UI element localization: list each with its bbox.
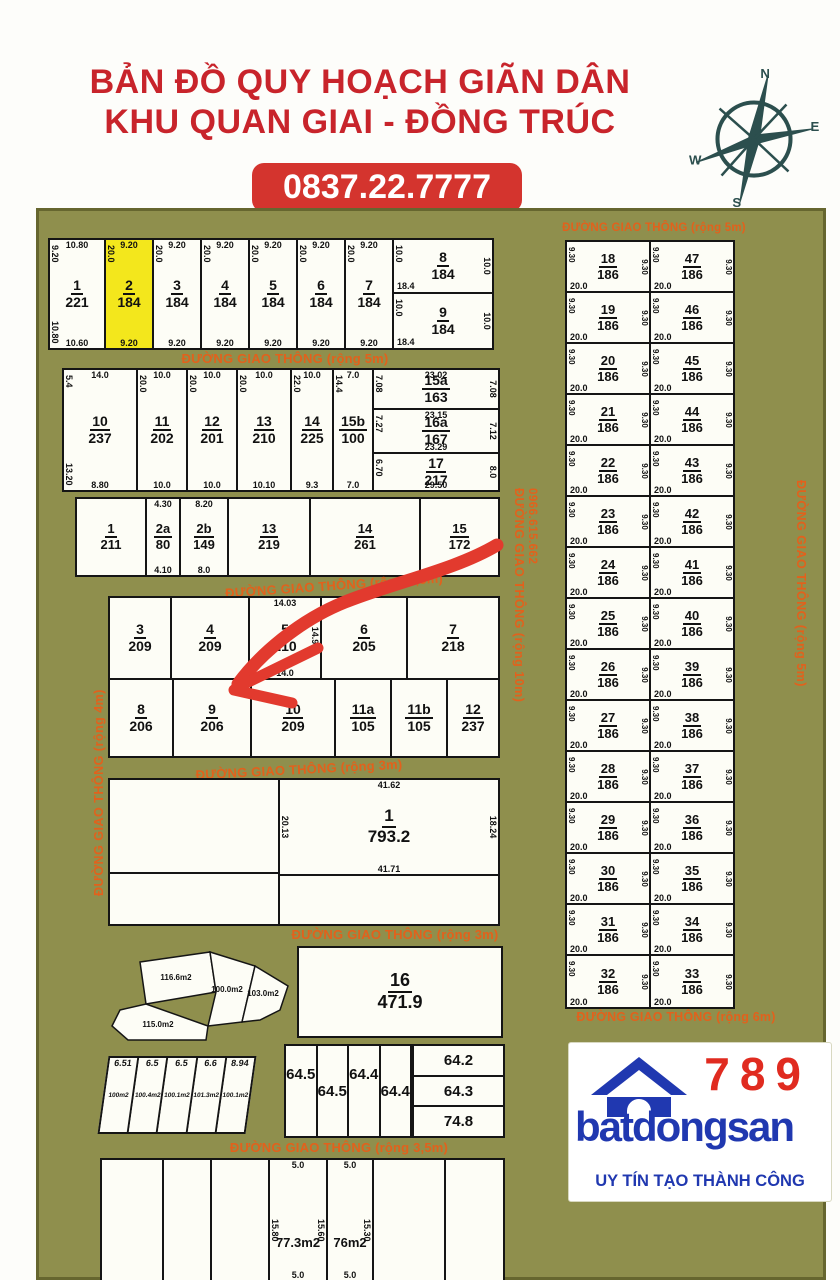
plot-label: 28186 — [597, 762, 619, 791]
dim-top: 5.0 — [328, 1160, 372, 1170]
plot: 64.3 — [414, 1077, 503, 1108]
plot-area: 64.4 — [381, 1083, 410, 1100]
planning-map-page: BẢN ĐỒ QUY HOẠCH GIÃN DÂN KHU QUAN GIAI … — [0, 0, 840, 1280]
dim-left: 9.30 — [651, 655, 660, 671]
plot: 8206 — [110, 680, 174, 756]
dim-left: 9.30 — [651, 808, 660, 824]
dim-bottom: 4.10 — [147, 565, 179, 575]
plot: 9.30 32186 9.30 20.0 — [567, 956, 651, 1007]
dim-bottom: 20.0 — [654, 689, 672, 699]
plot: 9.30 24186 9.30 20.0 — [567, 548, 651, 597]
plot-label: 11202 — [150, 414, 173, 447]
plot-area: 100.1m2 — [222, 1092, 249, 1099]
right-column-row: 9.30 24186 9.30 20.0 9.30 41186 9.30 20.… — [567, 548, 733, 599]
plot-area: 100.1m2 — [164, 1092, 191, 1099]
dim-bottom: 20.0 — [654, 842, 672, 852]
dim-bottom: 5.0 — [328, 1270, 372, 1280]
dim-top: 5.0 — [270, 1160, 326, 1170]
dim-bottom: 20.0 — [654, 281, 672, 291]
plot: 13219 — [229, 499, 311, 575]
dim-bottom: 9.20 — [154, 338, 200, 348]
right-column-row: 9.30 22186 9.30 20.0 9.30 43186 9.30 20.… — [567, 446, 733, 497]
dim-left: 9.30 — [567, 808, 576, 824]
dim-right: 9.30 — [724, 259, 733, 275]
right-column-row: 9.30 31186 9.30 20.0 9.30 34186 9.30 20.… — [567, 905, 733, 956]
plot: 41.62 20.13 18.24 1793.2 41.71 — [280, 780, 498, 876]
dim-top: 4.30 — [147, 499, 179, 509]
dim-right: 9.30 — [724, 412, 733, 428]
dim-left: 7.27 — [374, 415, 384, 433]
dim-top: 6.6 — [196, 1058, 225, 1068]
plot: 9.30 43186 9.30 20.0 — [651, 446, 733, 495]
dim-bottom: 20.0 — [570, 383, 588, 393]
dim-right: 9.30 — [724, 361, 733, 377]
plot-label: 36186 — [681, 813, 703, 842]
road-label-vertical: ĐƯỜNG GIAO THÔNG (rộng 10m) — [512, 488, 526, 702]
compass-n: N — [760, 66, 770, 81]
plot — [280, 876, 498, 924]
plot-area: 64.5 — [286, 1066, 315, 1083]
logo-brand: batdongsan — [575, 1103, 793, 1151]
plot: 9.30 27186 9.30 20.0 — [567, 701, 651, 750]
plot: 9.30 33186 9.30 20.0 — [651, 956, 733, 1007]
dim-right: 9.30 — [640, 667, 649, 683]
road-label: ĐƯỜNG GIAO THÔNG (rộng 5m) — [152, 351, 418, 366]
plot-label: 47186 — [681, 252, 703, 281]
block-d: 3209 4209 14.03 14.94 5210 14.0 — [108, 596, 500, 758]
plot-label: 41186 — [681, 558, 703, 587]
dim-left: 9.30 — [651, 859, 660, 875]
plot: 9.30 23186 9.30 20.0 — [567, 497, 651, 546]
dim-right: 9.30 — [640, 616, 649, 632]
plot — [110, 780, 278, 874]
plot: 7.0 14.4 15b100 7.0 — [334, 370, 374, 490]
plot: 10.0 10.0 9184 18.4 — [394, 294, 492, 348]
block-e-left — [110, 780, 280, 924]
plot: 5.0 15.80 15.60 77.3m2 5.0 — [270, 1160, 328, 1280]
plot-label: 20186 — [597, 354, 619, 383]
dim-left: 20.0 — [106, 245, 116, 263]
block-b-strips: 14.0 5.4 13.20 10237 8.80 10.0 20.0 1120… — [64, 370, 374, 490]
dim-bottom: 20.0 — [570, 281, 588, 291]
dim-left: 20.0 — [138, 375, 148, 393]
dim-right: 10.0 — [482, 257, 492, 275]
dim-bottom: 7.0 — [334, 480, 372, 490]
right-column-row: 9.30 21186 9.30 20.0 9.30 44186 9.30 20.… — [567, 395, 733, 446]
dim-right: 9.30 — [640, 514, 649, 530]
plot-label: 4184 — [213, 278, 236, 311]
dim-bottom: 20.0 — [570, 587, 588, 597]
plot-label: 40186 — [681, 609, 703, 638]
logo-number: 789 — [704, 1047, 811, 1101]
plot-label: 3209 — [128, 622, 151, 655]
road-label-vertical: ĐƯỜNG GIAO THÔNG (rộng 4m) — [92, 606, 106, 896]
plot: 64.2 — [414, 1046, 503, 1077]
plot-label: 16a167 — [422, 415, 449, 448]
dim-right: 7.12 — [488, 422, 498, 440]
plot: 9.30 41186 9.30 20.0 — [651, 548, 733, 597]
dim-bottom: 18.4 — [397, 337, 415, 347]
plot: 9.30 42186 9.30 20.0 — [651, 497, 733, 546]
dim-right: 9.30 — [640, 974, 649, 990]
dim-bottom: 10.0 — [138, 480, 186, 490]
plot-label: 33186 — [681, 967, 703, 996]
dim-left: 6.70 — [374, 459, 384, 477]
plot: 9.30 29186 9.30 20.0 — [567, 803, 651, 852]
dim-bottom: 20.0 — [654, 587, 672, 597]
block-b: 14.0 5.4 13.20 10237 8.80 10.0 20.0 1120… — [62, 368, 500, 492]
block-e-right: 41.62 20.13 18.24 1793.2 41.71 — [280, 780, 498, 924]
dim-left: 10.0 — [394, 299, 404, 317]
plot: 14261 — [311, 499, 421, 575]
dim-right: 9.30 — [724, 514, 733, 530]
road-label: ĐƯỜNG GIAO THÔNG (rộng 6m) — [556, 1010, 796, 1024]
dim-left: 9.30 — [567, 553, 576, 569]
plot-label: 1793.2 — [368, 807, 411, 846]
plot: 9.20 20.0 6184 9.20 — [298, 240, 346, 348]
dim-bottom: 9.20 — [346, 338, 392, 348]
plot-label: 25186 — [597, 609, 619, 638]
plot: 9.30 25186 9.30 20.0 — [567, 599, 651, 648]
plot-area: 115.0m2 — [142, 1020, 174, 1029]
title-line-2: KHU QUAN GIAI - ĐỒNG TRÚC — [30, 102, 690, 142]
plot: 9.30 31186 9.30 20.0 — [567, 905, 651, 954]
dim-bottom: 20.0 — [570, 485, 588, 495]
plot: 4.30 2a80 4.10 — [147, 499, 181, 575]
dim-right: 9.30 — [640, 361, 649, 377]
plot: 15172 — [421, 499, 498, 575]
right-column-row: 9.30 20186 9.30 20.0 9.30 45186 9.30 20.… — [567, 344, 733, 395]
plot: 9.30 47186 9.30 20.0 — [651, 242, 733, 291]
plot: 64.4 — [381, 1046, 411, 1136]
dim-top: 8.94 — [226, 1058, 255, 1068]
plot-label: 31186 — [597, 915, 619, 944]
plot: 12237 — [448, 680, 498, 756]
plot-label: 32186 — [597, 967, 619, 996]
plot-label: 43186 — [681, 456, 703, 485]
plot — [446, 1160, 503, 1280]
block-g-strips: 6.51 100m2 6.5 100.4m2 6.5 100.1m2 6.6 1… — [98, 1056, 257, 1134]
plot-label: 7184 — [357, 278, 380, 311]
plot-label: 29186 — [597, 813, 619, 842]
dim-bottom: 20.0 — [570, 332, 588, 342]
plot: 9206 — [174, 680, 252, 756]
plot-label: 35186 — [681, 864, 703, 893]
dim-left: 9.30 — [567, 859, 576, 875]
plot: 9.30 40186 9.30 20.0 — [651, 599, 733, 648]
block-a: 10.80 9.20 10.80 1221 10.60 9.20 20.0 21… — [48, 238, 494, 350]
dim-left: 5.4 — [64, 375, 74, 388]
plot-label: 12237 — [461, 702, 484, 735]
dim-right: 9.30 — [724, 616, 733, 632]
dim-top: 14.03 — [250, 598, 320, 608]
dim-bottom: 20.0 — [570, 842, 588, 852]
compass-w: W — [689, 152, 702, 167]
dim-bottom: 20.0 — [654, 944, 672, 954]
road-label: ĐƯỜNG GIAO THÔNG (rộng 5m) — [556, 222, 752, 234]
dim-top: 6.51 — [109, 1058, 138, 1068]
right-column-row: 9.30 30186 9.30 20.0 9.30 35186 9.30 20.… — [567, 854, 733, 905]
dim-left: 9.30 — [567, 910, 576, 926]
dim-left: 9.30 — [651, 349, 660, 365]
plot-label: 14225 — [300, 414, 323, 447]
plot-label: 16471.9 — [377, 971, 422, 1013]
plot-label: 42186 — [681, 507, 703, 536]
dim-right: 9.30 — [640, 871, 649, 887]
plot-label: 8206 — [129, 702, 152, 735]
dim-right: 9.30 — [724, 871, 733, 887]
plot: 9.20 20.0 2184 9.20 — [106, 240, 154, 348]
plot-label: 4209 — [198, 622, 221, 655]
plot: 9.20 20.0 5184 9.20 — [250, 240, 298, 348]
dim-bottom: 20.0 — [654, 485, 672, 495]
dim-left: 9.20 — [50, 245, 60, 263]
dim-bottom: 8.80 — [64, 480, 136, 490]
dim-bottom: 41.71 — [280, 864, 498, 874]
plot-label: 44186 — [681, 405, 703, 434]
dim-bottom: 20.0 — [570, 536, 588, 546]
plot — [110, 874, 278, 924]
dim-right: 9.30 — [640, 259, 649, 275]
plot-label: 21186 — [597, 405, 619, 434]
right-column-row: 9.30 25186 9.30 20.0 9.30 40186 9.30 20.… — [567, 599, 733, 650]
plot: 64.5 — [286, 1046, 318, 1136]
dim-right: 14.94 — [310, 627, 320, 650]
dim-bottom: 20.0 — [570, 944, 588, 954]
plot — [164, 1160, 212, 1280]
dim-left: 14.4 — [334, 375, 344, 393]
plot: 6205 — [322, 598, 408, 678]
plot-label: 17217 — [424, 456, 447, 489]
plot — [212, 1160, 270, 1280]
plot-label: 37186 — [681, 762, 703, 791]
compass-e: E — [810, 119, 819, 134]
dim-bottom: 20.0 — [654, 638, 672, 648]
road-label: ĐƯỜNG GIAO THÔNG (rộng 3,5m) — [196, 1140, 482, 1155]
plot: 10.80 9.20 10.80 1221 10.60 — [50, 240, 106, 348]
plot-area: 77.3m2 — [276, 1235, 320, 1250]
plot: 11b105 — [392, 680, 448, 756]
plot-area: 64.5 — [318, 1083, 347, 1100]
logo-batdongsan789: 789 batdongsan UY TÍN TẠO THÀNH CÔNG — [568, 1042, 832, 1202]
dim-right: 9.30 — [724, 667, 733, 683]
plot-label: 7218 — [441, 622, 464, 655]
plot-label: 22186 — [597, 456, 619, 485]
dim-left: 9.30 — [567, 655, 576, 671]
plot — [374, 1160, 446, 1280]
plot: 9.30 22186 9.30 20.0 — [567, 446, 651, 495]
plot-area: 103.0m2 — [247, 989, 279, 998]
dim-right: 9.30 — [724, 820, 733, 836]
plot: 9.30 36186 9.30 20.0 — [651, 803, 733, 852]
dim-left: 9.30 — [567, 298, 576, 314]
block-d-bottom-row: 8206 9206 10209 11a105 11b105 — [110, 680, 498, 756]
plot-label: 3184 — [165, 278, 188, 311]
plot-area: 100m2 — [108, 1092, 129, 1099]
plot-area: 76m2 — [333, 1235, 366, 1250]
dim-left: 9.30 — [651, 961, 660, 977]
dim-left: 9.30 — [567, 451, 576, 467]
dim-bottom: 10.60 — [50, 338, 104, 348]
dim-left: 9.30 — [651, 553, 660, 569]
plot: 23.02 7.08 7.08 15a163 — [374, 370, 498, 410]
plot: 14.03 14.94 5210 14.0 — [250, 598, 322, 678]
plot: 9.30 19186 9.30 20.0 — [567, 293, 651, 342]
block-f-cluster: 116.6m2 100.0m2 103.0m2 115.0m2 — [110, 948, 298, 1048]
plot-label: 2184 — [117, 278, 140, 311]
plot-label: 39186 — [681, 660, 703, 689]
plot-label: 15a163 — [422, 373, 449, 406]
dim-bottom: 18.4 — [397, 281, 415, 291]
dim-right: 9.30 — [640, 769, 649, 785]
block-a-stacked: 10.0 10.0 8184 18.4 10.0 10.0 9184 18.4 — [394, 240, 492, 348]
dim-right: 7.08 — [488, 380, 498, 398]
dim-top: 14.0 — [64, 370, 136, 380]
right-column-row: 9.30 26186 9.30 20.0 9.30 39186 9.30 20.… — [567, 650, 733, 701]
dim-right: 9.30 — [724, 974, 733, 990]
block-g-stack: 64.2 64.3 74.8 — [412, 1044, 505, 1138]
right-column-row: 9.30 23186 9.30 20.0 9.30 42186 9.30 20.… — [567, 497, 733, 548]
right-column-row: 9.30 28186 9.30 20.0 9.30 37186 9.30 20.… — [567, 752, 733, 803]
plot-area: 74.8 — [444, 1113, 473, 1130]
dim-left: 9.30 — [651, 400, 660, 416]
plot-label: 2b149 — [193, 522, 215, 553]
plot: 9.30 30186 9.30 20.0 — [567, 854, 651, 903]
dim-left: 20.13 — [280, 816, 290, 839]
dim-left: 20.0 — [188, 375, 198, 393]
dim-left: 22.0 — [292, 375, 302, 393]
plot: 10.0 10.0 8184 18.4 — [394, 240, 492, 294]
plot: 9.30 34186 9.30 20.0 — [651, 905, 733, 954]
dim-left: 9.30 — [567, 757, 576, 773]
dim-bottom: 20.0 — [654, 434, 672, 444]
plot: 9.30 37186 9.30 20.0 — [651, 752, 733, 801]
plot: 64.5 — [318, 1046, 350, 1136]
plot: 9.30 35186 9.30 20.0 — [651, 854, 733, 903]
dim-bottom: 20.0 — [654, 740, 672, 750]
plot-area: 101.3m2 — [193, 1092, 220, 1099]
plot: 64.4 — [349, 1046, 381, 1136]
dim-left: 9.30 — [651, 298, 660, 314]
block-c: 1211 4.30 2a80 4.10 8.20 2b149 8.0 13219 — [75, 497, 500, 577]
block-e: 41.62 20.13 18.24 1793.2 41.71 — [108, 778, 500, 926]
dim-right: 18.24 — [488, 816, 498, 839]
plot-label: 26186 — [597, 660, 619, 689]
plot-label: 34186 — [681, 915, 703, 944]
plot-area: 100.0m2 — [211, 985, 243, 994]
plot: 9.30 44186 9.30 20.0 — [651, 395, 733, 444]
plot: 5.0 15.30 76m2 5.0 — [328, 1160, 374, 1280]
plot: 8.20 2b149 8.0 — [181, 499, 229, 575]
dim-right: 8.0 — [488, 466, 498, 479]
plot: 9.20 20.0 7184 9.20 — [346, 240, 394, 348]
road-label-vertical: ĐƯỜNG GIAO THÔNG (rộng 5m) — [794, 480, 808, 800]
plot: 11a105 — [336, 680, 392, 756]
plot-label: 19186 — [597, 303, 619, 332]
plot-label: 2a80 — [154, 522, 172, 553]
right-column-row: 9.30 32186 9.30 20.0 9.30 33186 9.30 20.… — [567, 956, 733, 1007]
dim-bottom: 20.0 — [570, 434, 588, 444]
plot-label: 24186 — [597, 558, 619, 587]
plot: 9.30 18186 9.30 20.0 — [567, 242, 651, 291]
dim-bottom: 9.20 — [106, 338, 152, 348]
right-column-row: 9.30 29186 9.30 20.0 9.30 36186 9.30 20.… — [567, 803, 733, 854]
plot: 9.30 38186 9.30 20.0 — [651, 701, 733, 750]
plot: 10.0 20.0 12201 10.0 — [188, 370, 238, 490]
dim-left: 9.30 — [567, 247, 576, 263]
plot-16: 16471.9 — [297, 946, 503, 1038]
plot-label: 9206 — [200, 702, 223, 735]
dim-left: 20.0 — [250, 245, 260, 263]
dim-bottom: 20.0 — [654, 383, 672, 393]
plot-label: 23186 — [597, 507, 619, 536]
dim-right: 9.30 — [640, 412, 649, 428]
dim-bottom: 20.0 — [570, 791, 588, 801]
plot: 6.70 8.0 17217 29.50 — [374, 454, 498, 490]
dim-bottom: 14.0 — [250, 668, 320, 678]
plot-label: 18186 — [597, 252, 619, 281]
plot: 9.30 45186 9.30 20.0 — [651, 344, 733, 393]
phone-badge: 0837.22.7777 — [252, 163, 522, 212]
dim-top: 41.62 — [280, 780, 498, 790]
plot: 9.30 21186 9.30 20.0 — [567, 395, 651, 444]
plot — [102, 1160, 164, 1280]
dim-bottom: 20.0 — [570, 893, 588, 903]
plot-label: 12201 — [200, 414, 223, 447]
plot-label: 5184 — [261, 278, 284, 311]
dim-bottom: 20.0 — [654, 332, 672, 342]
dim-left: 20.0 — [238, 375, 248, 393]
dim-bottom: 10.0 — [188, 480, 236, 490]
mid-road: ĐƯỜNG GIAO THÔNG (rộng 10m) 0966.615.662 — [512, 488, 538, 702]
dim-left: 9.30 — [651, 451, 660, 467]
plot: 9.30 28186 9.30 20.0 — [567, 752, 651, 801]
logo-slogan: UY TÍN TẠO THÀNH CÔNG — [569, 1172, 831, 1191]
dim-left: 7.08 — [374, 375, 384, 393]
plot-label: 15172 — [449, 522, 471, 553]
dim-left: 9.30 — [567, 706, 576, 722]
plot: 4209 — [172, 598, 250, 678]
plot-label: 5210 — [273, 622, 296, 655]
dim-bottom: 9.3 — [292, 480, 332, 490]
page-title: BẢN ĐỒ QUY HOẠCH GIÃN DÂN KHU QUAN GIAI … — [30, 62, 690, 142]
plot: 74.8 — [414, 1107, 503, 1136]
dim-bottom: 9.20 — [202, 338, 248, 348]
plot-label: 45186 — [681, 354, 703, 383]
plot-area: 100.4m2 — [134, 1092, 161, 1099]
dim-bottom: 20.0 — [654, 997, 672, 1007]
dim-right: 9.30 — [640, 820, 649, 836]
plot-label: 6184 — [309, 278, 332, 311]
dim-bottom: 20.0 — [654, 893, 672, 903]
dim-right: 9.30 — [724, 310, 733, 326]
plot: 7218 — [408, 598, 498, 678]
dim-bottom: 9.20 — [250, 338, 296, 348]
dim-top: 8.20 — [181, 499, 227, 509]
plot-label: 1211 — [101, 522, 122, 553]
dim-left: 9.30 — [567, 349, 576, 365]
plot: 10209 — [252, 680, 336, 756]
dim-right: 9.30 — [640, 922, 649, 938]
dim-bottom: 20.0 — [570, 689, 588, 699]
plot-area: 116.6m2 — [160, 973, 192, 982]
dim-bottom: 20.0 — [654, 536, 672, 546]
dim-right: 9.30 — [724, 565, 733, 581]
plot-label: 10209 — [281, 702, 304, 735]
dim-bottom: 20.0 — [654, 791, 672, 801]
title-line-1: BẢN ĐỒ QUY HOẠCH GIÃN DÂN — [30, 62, 690, 102]
dim-left: 9.30 — [567, 604, 576, 620]
